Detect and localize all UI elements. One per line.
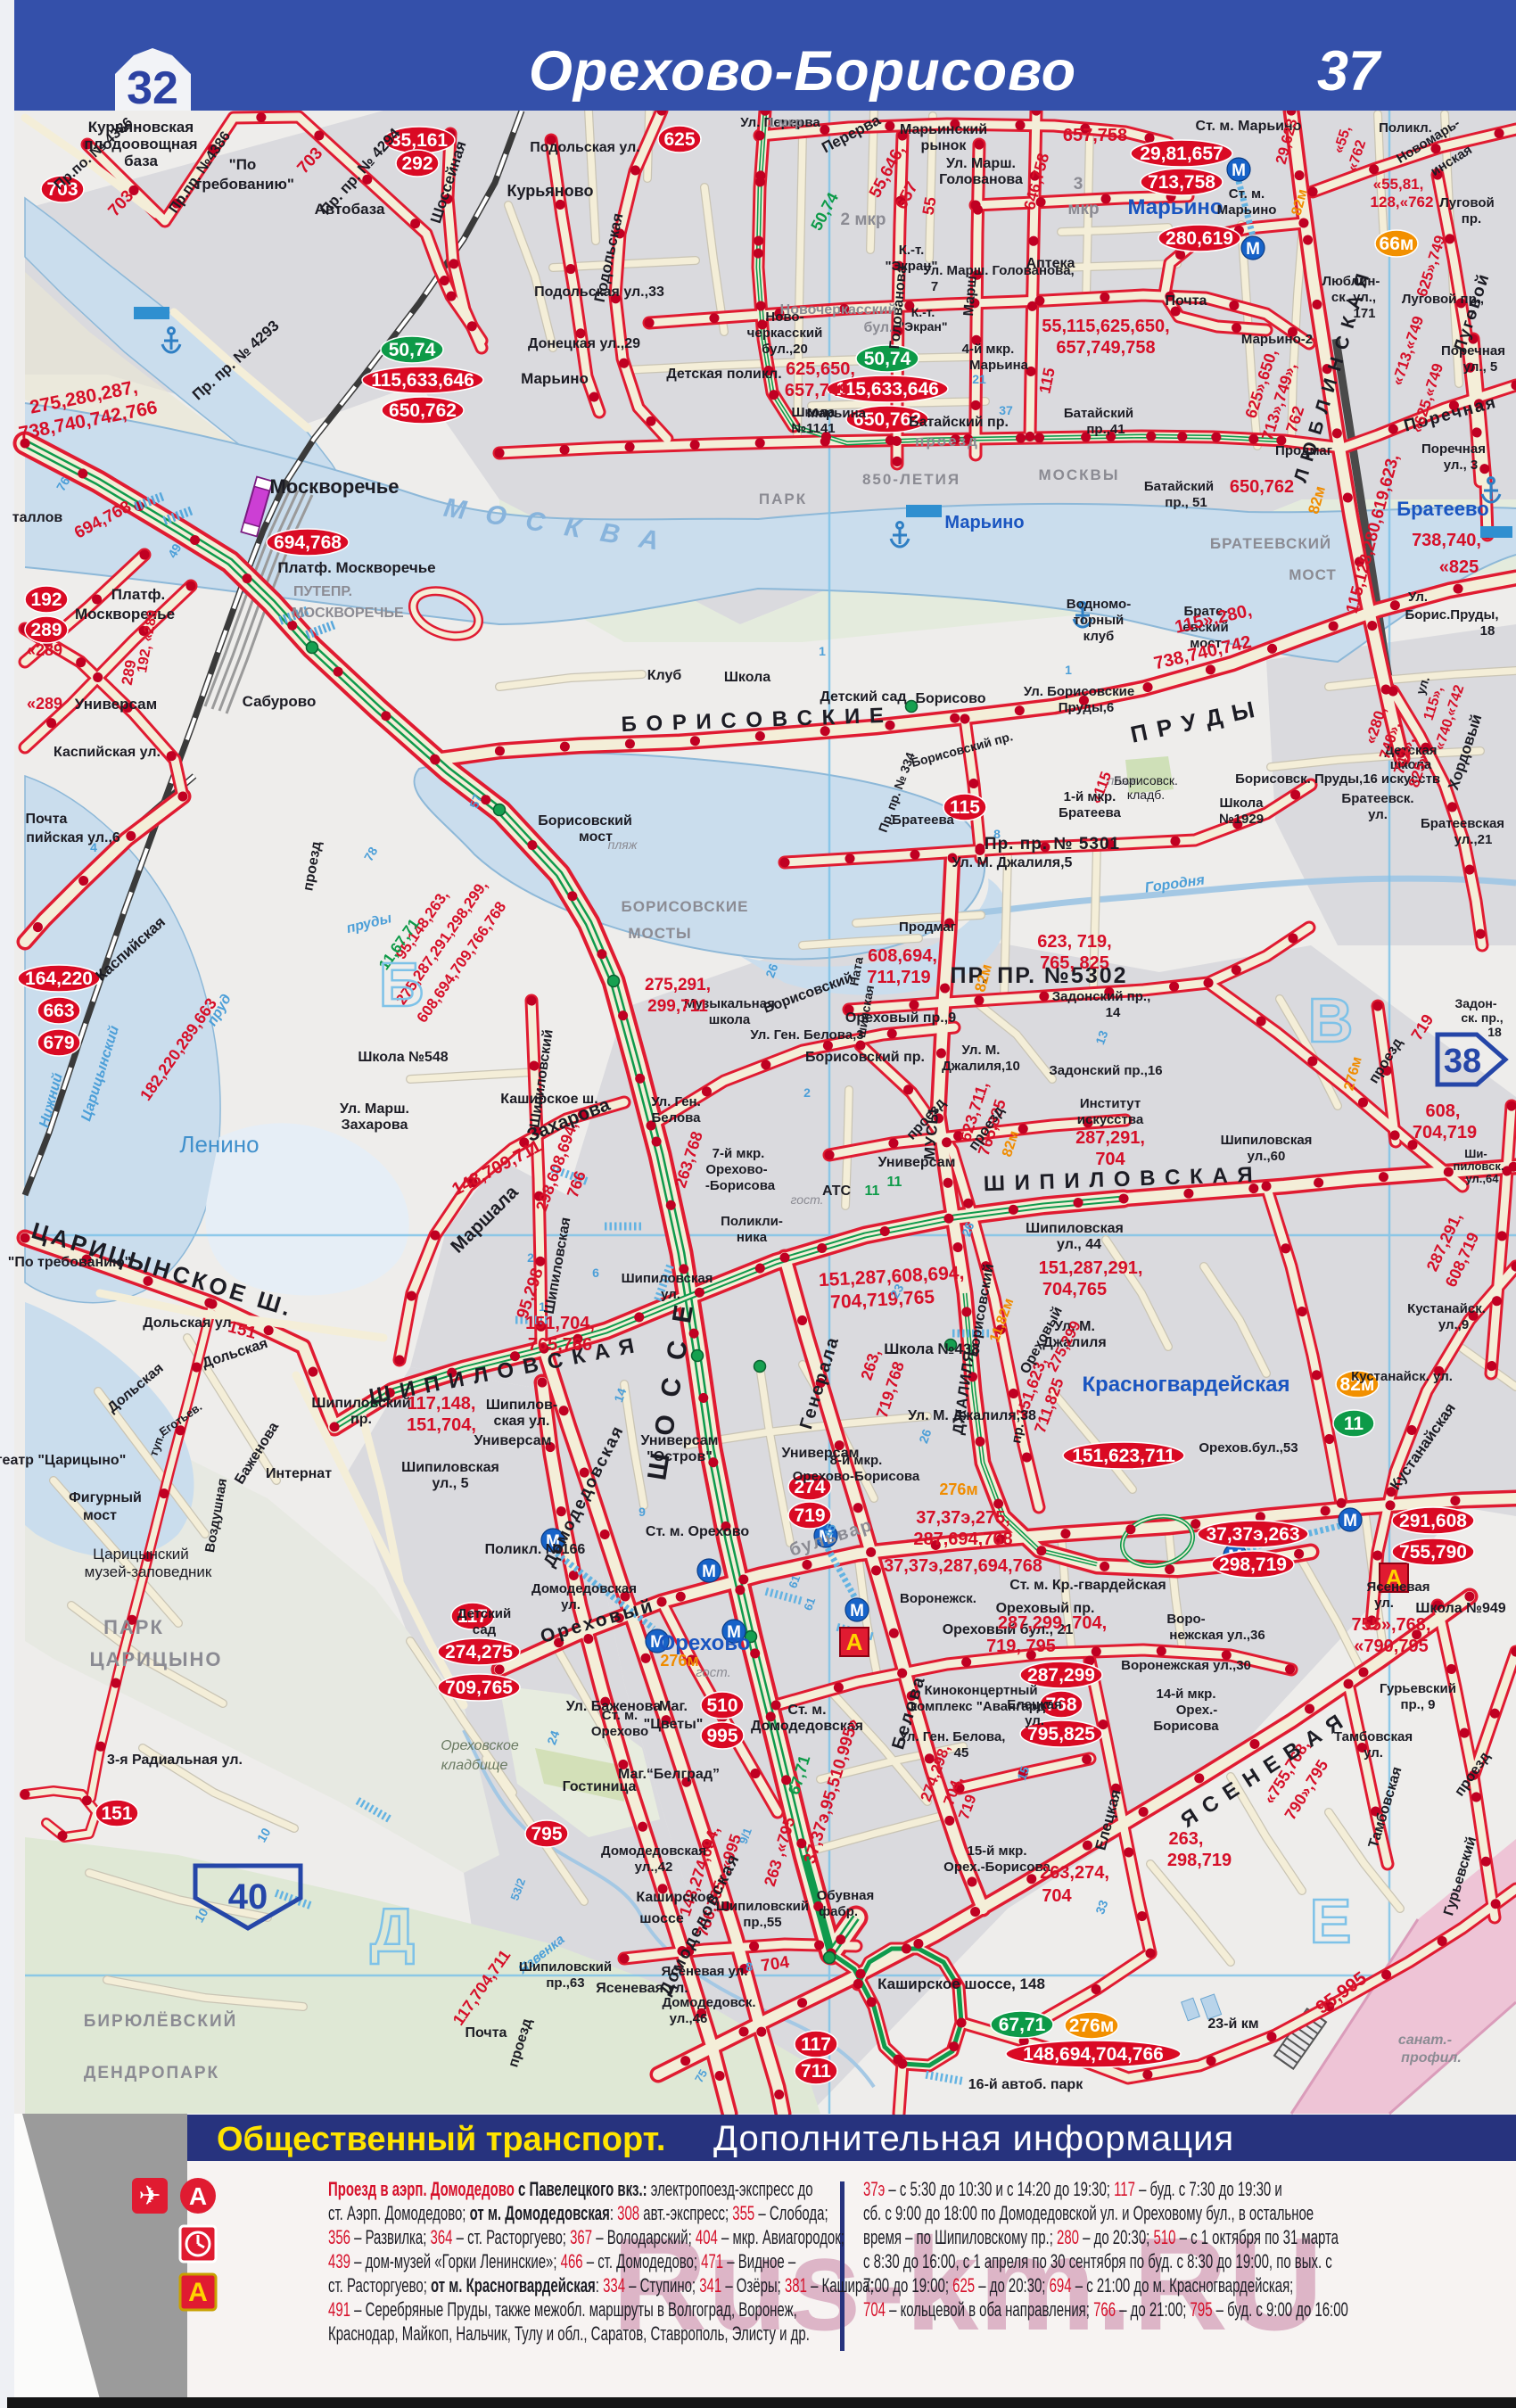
svg-text:Орехово-: Орехово- (705, 1162, 767, 1177)
svg-text:МОСКВОРЕЧЬЕ: МОСКВОРЕЧЬЕ (292, 606, 404, 621)
svg-text:704,765: 704,765 (1042, 1280, 1107, 1299)
svg-text:37,37э,275,: 37,37э,275, (916, 1508, 1010, 1528)
svg-text:М: М (1246, 240, 1260, 259)
svg-text:8: 8 (993, 827, 1001, 841)
svg-text:Марьино: Марьино (1128, 195, 1224, 219)
svg-text:шоссе: шоссе (639, 1911, 684, 1926)
svg-text:торный: торный (1074, 613, 1125, 628)
svg-text:32: 32 (127, 62, 178, 114)
svg-text:37,37э,287,694,768: 37,37э,287,694,768 (884, 1556, 1042, 1576)
svg-text:55: 55 (919, 195, 940, 216)
svg-text:55,115,625,650,: 55,115,625,650, (1042, 317, 1169, 336)
svg-text:Шипиловский: Шипиловский (519, 1959, 612, 1975)
svg-text:"Цветы": "Цветы" (644, 1717, 704, 1732)
svg-text:738,740,: 738,740, (1412, 531, 1481, 550)
svg-text:«289: «289 (27, 641, 62, 659)
svg-text:ника: ника (737, 1230, 768, 1245)
svg-text:база: база (124, 153, 158, 169)
svg-text:Платф.: Платф. (111, 586, 165, 603)
svg-text:ская ул.: ская ул. (494, 1414, 550, 1429)
svg-text:ЦАРИЦЫНО: ЦАРИЦЫНО (89, 1648, 222, 1670)
svg-text:151,704,: 151,704, (525, 1314, 595, 1333)
svg-text:Ст. м.: Ст. м. (1229, 186, 1265, 202)
svg-text:Почта: Почта (26, 812, 68, 827)
svg-text:Почта: Почта (1166, 293, 1207, 309)
svg-text:«289: «289 (27, 695, 62, 713)
svg-text:Обувная: Обувная (817, 1888, 874, 1903)
svg-text:Ленино: Ленино (179, 1131, 259, 1158)
svg-text:755,790: 755,790 (1399, 1542, 1467, 1563)
svg-text:Братеева: Братеева (1059, 805, 1121, 821)
svg-text:"По: "По (229, 156, 257, 173)
svg-text:Орех.-Борисова: Орех.-Борисова (943, 1860, 1050, 1875)
svg-text:ПАРК: ПАРК (759, 491, 807, 507)
svg-text:Каспийская ул.: Каспийская ул. (54, 745, 161, 760)
svg-text:694,768: 694,768 (274, 532, 342, 553)
svg-text:37: 37 (999, 403, 1013, 417)
svg-text:795: 795 (531, 1824, 562, 1844)
svg-text:6: 6 (592, 1266, 599, 1280)
svg-text:Батайский: Батайский (1144, 479, 1214, 494)
svg-text:Ново-: Ново- (765, 309, 803, 325)
svg-text:Орехово: Орехово (659, 1631, 751, 1655)
svg-text:-Борисова: -Борисова (705, 1178, 776, 1193)
svg-text:713,758: 713,758 (1148, 172, 1215, 193)
svg-text:К.-т.: К.-т. (911, 305, 935, 319)
svg-text:нежская ул.,36: нежская ул.,36 (1169, 1628, 1265, 1643)
svg-text:625: 625 (663, 129, 695, 150)
svg-text:Универсам: Универсам (782, 1446, 860, 1461)
svg-text:37: 37 (1317, 40, 1382, 103)
svg-text:275,291,: 275,291, (645, 976, 711, 994)
svg-text:Школа: Школа (1219, 796, 1264, 811)
svg-text:287,299, 704,: 287,299, 704, (998, 1613, 1107, 1633)
svg-text:711: 711 (801, 2061, 831, 2082)
svg-text:Институт: Институт (1080, 1096, 1141, 1111)
svg-text:проезд: проезд (915, 433, 979, 449)
svg-text:М: М (702, 1563, 716, 1581)
svg-text:Батайский: Батайский (1064, 406, 1133, 421)
svg-text:Борисовский: Борисовский (538, 813, 632, 829)
svg-text:Борисово: Борисово (916, 691, 986, 706)
svg-text:Универсам: Универсам (75, 696, 157, 713)
svg-text:Платф. Москворечье: Платф. Москворечье (277, 559, 435, 576)
svg-text:7: 7 (931, 279, 938, 294)
svg-text:М: М (1343, 1512, 1357, 1530)
svg-text:Задонский пр.,: Задонский пр., (1052, 989, 1151, 1004)
svg-text:БРАТЕЕВСКИЙ: БРАТЕЕВСКИЙ (1210, 535, 1331, 552)
svg-text:ул.,42: ул.,42 (635, 1860, 673, 1875)
svg-text:Задон-: Задон- (1454, 996, 1496, 1010)
svg-text:151,704,: 151,704, (407, 1415, 476, 1435)
svg-text:Братеевск.: Братеевск. (1341, 791, 1413, 806)
svg-text:пляж: пляж (608, 837, 639, 852)
svg-text:Интернат: Интернат (266, 1466, 332, 1481)
svg-text:608,694,: 608,694, (868, 946, 937, 966)
svg-text:276м: 276м (1069, 2016, 1115, 2036)
svg-text:Ст. м. Кр.-гвардейская: Ст. м. Кр.-гвардейская (1009, 1578, 1166, 1593)
svg-text:Белова: Белова (652, 1110, 702, 1126)
svg-text:3-я Радиальная ул.: 3-я Радиальная ул. (107, 1752, 243, 1768)
svg-text:657,749,758: 657,749,758 (1056, 338, 1155, 358)
svg-text:Ясеневая: Ясеневая (1367, 1579, 1430, 1595)
svg-text:с 8:30 до 16:00, с 1 апреля по: с 8:30 до 16:00, с 1 апреля по 30 сентяб… (863, 2250, 1332, 2272)
svg-text:гост.: гост. (696, 1665, 731, 1680)
svg-text:пр.: пр. (350, 1412, 372, 1427)
svg-text:ул., 3: ул., 3 (1444, 458, 1479, 473)
svg-text:Борисовский пр.: Борисовский пр. (805, 1050, 925, 1065)
svg-text:Подольская ул.: Подольская ул. (530, 140, 639, 155)
svg-text:7-й мкр.: 7-й мкр. (713, 1146, 765, 1161)
svg-text:Клуб: Клуб (647, 668, 682, 683)
svg-text:Продмаг: Продмаг (899, 919, 956, 935)
svg-text:Общественный транспорт.: Общественный транспорт. (217, 2121, 665, 2158)
svg-text:ул.,9: ул.,9 (1438, 1317, 1469, 1332)
svg-text:В: В (1308, 985, 1354, 1055)
svg-text:пр.,63: пр.,63 (546, 1975, 584, 1991)
svg-text:11: 11 (887, 1175, 902, 1190)
svg-text:1: 1 (1065, 663, 1072, 677)
svg-text:Каширское: Каширское (636, 1890, 713, 1905)
svg-text:Орехово: Орехово (591, 1724, 648, 1739)
svg-text:663: 663 (43, 1001, 74, 1021)
svg-text:Ул. Борисовские: Ул. Борисовские (1024, 684, 1134, 699)
svg-text:Курьяновская: Курьяновская (88, 119, 194, 136)
svg-text:Елецкая: Елецкая (1007, 1697, 1062, 1712)
svg-text:ПУТЕПР.: ПУТЕПР. (293, 584, 352, 599)
svg-text:Шипиловская: Шипиловская (401, 1460, 499, 1475)
svg-text:Продмаг: Продмаг (1275, 443, 1332, 458)
svg-text:«55,81,: «55,81, (1373, 176, 1424, 193)
svg-text:театр "Царицыно": театр "Царицыно" (0, 1453, 126, 1468)
svg-text:Почта: Почта (466, 2025, 507, 2041)
svg-text:Марьино-2: Марьино-2 (1241, 332, 1313, 347)
svg-text:Марьина: Марьина (969, 358, 1029, 373)
svg-text:Ул. Марш. Голованова,: Ул. Марш. Голованова, (923, 263, 1074, 278)
svg-text:40: 40 (228, 1877, 268, 1917)
svg-text:"По требованию": "По требованию" (8, 1255, 132, 1270)
svg-text:287,291,: 287,291, (1075, 1128, 1145, 1148)
svg-text:Краснодар, Майкоп, Нальчик, Ту: Краснодар, Майкоп, Нальчик, Тулу и обл.,… (328, 2322, 810, 2345)
svg-text:ДЕНДРОПАРК: ДЕНДРОПАРК (84, 2064, 219, 2082)
svg-text:А: А (846, 1629, 863, 1655)
svg-text:пр.,55: пр.,55 (743, 1915, 781, 1930)
svg-text:время – по Шипиловскому пр.; 2: время – по Шипиловскому пр.; 280 – до 20… (863, 2226, 1339, 2248)
svg-text:пийская ул.,6: пийская ул.,6 (26, 830, 120, 845)
svg-text:Голованова: Голованова (939, 172, 1023, 187)
svg-text:Марьино: Марьино (944, 513, 1024, 532)
svg-text:Шипиловская: Шипиловская (622, 1271, 713, 1286)
svg-text:491 – Серебряные Пруды, также: 491 – Серебряные Пруды, также межобл. ма… (328, 2298, 797, 2321)
svg-text:Дополнительная информация: Дополнительная информация (713, 2119, 1234, 2158)
svg-text:995: 995 (706, 1726, 737, 1746)
svg-text:бул.,20: бул.,20 (762, 342, 808, 357)
svg-text:клуб: клуб (1083, 629, 1115, 644)
svg-text:151: 151 (101, 1803, 132, 1824)
svg-text:Борисовск.: Борисовск. (1114, 773, 1178, 788)
svg-text:Ст. м.: Ст. м. (602, 1708, 638, 1723)
svg-text:мкр: мкр (1067, 200, 1099, 219)
svg-text:ст. Аэрп. Домодедово; от м. До: ст. Аэрп. Домодедово; от м. Домодедовска… (328, 2202, 828, 2224)
svg-text:№1141: №1141 (791, 421, 835, 436)
svg-text:музей-заповедник: музей-заповедник (85, 1563, 212, 1580)
svg-text:"Экран": "Экран" (898, 319, 947, 334)
svg-text:Пруды,6: Пруды,6 (1059, 700, 1115, 715)
svg-text:14: 14 (1106, 1005, 1121, 1020)
svg-text:Б: Б (379, 950, 424, 1019)
svg-text:ул.: ул. (1364, 1745, 1383, 1761)
svg-text:школа: школа (709, 1012, 751, 1027)
svg-text:Каширское ш.: Каширское ш. (500, 1092, 597, 1107)
svg-text:ск. пр.,: ск. пр., (1461, 1010, 1503, 1025)
svg-text:765,766: 765,766 (528, 1335, 592, 1355)
svg-text:Орехово-Борисово: Орехово-Борисово (529, 40, 1076, 103)
svg-text:Братеевская: Братеевская (1421, 816, 1504, 831)
svg-text:таллов: таллов (12, 510, 63, 525)
svg-text:МОСКВЫ: МОСКВЫ (1039, 466, 1120, 483)
svg-text:Поликл. №166: Поликл. №166 (485, 1542, 586, 1557)
svg-text:298,719: 298,719 (1219, 1554, 1287, 1575)
svg-text:Ул. Ген. Белова,3: Ул. Ген. Белова,3 (750, 1027, 863, 1043)
svg-text:ул.: ул. (1374, 1596, 1394, 1611)
svg-text:✈: ✈ (138, 2181, 161, 2211)
svg-text:Ул. М.: Ул. М. (962, 1043, 1001, 1058)
svg-text:50,74: 50,74 (389, 340, 436, 360)
svg-text:бул.: бул. (864, 320, 894, 335)
svg-text:128,«762: 128,«762 (1371, 194, 1434, 210)
svg-text:Д: Д (370, 1895, 415, 1965)
svg-text:2 мкр: 2 мкр (840, 210, 886, 229)
svg-text:280,619: 280,619 (1166, 228, 1233, 249)
svg-text:37,37э,263: 37,37э,263 (1206, 1524, 1299, 1545)
svg-text:Воронежск.: Воронежск. (900, 1591, 976, 1606)
svg-text:115: 115 (950, 797, 980, 818)
svg-text:пр., 51: пр., 51 (1165, 495, 1207, 510)
svg-text:ул.,60: ул.,60 (1248, 1149, 1286, 1164)
svg-text:625,650,: 625,650, (786, 359, 855, 379)
svg-text:М: М (850, 1602, 864, 1620)
svg-text:Гурьевский: Гурьевский (1380, 1681, 1456, 1696)
svg-text:рынок: рынок (921, 138, 968, 153)
svg-text:черкасский: черкасский (747, 326, 823, 341)
svg-text:Проезд в аэрп. Домодедово с Па: Проезд в аэрп. Домодедово с Павелецкого … (328, 2178, 813, 2200)
svg-text:Донецкая ул.,29: Донецкая ул.,29 (528, 336, 640, 351)
svg-text:Домодедовская: Домодедовская (601, 1843, 706, 1859)
svg-text:Ул.: Ул. (1408, 590, 1428, 605)
svg-text:Ореховское: Ореховское (441, 1738, 519, 1753)
svg-text:ул.,46: ул.,46 (670, 2011, 708, 2026)
svg-text:4: 4 (90, 840, 97, 854)
svg-text:1 мкр: 1 мкр (767, 115, 803, 130)
svg-text:Подольская ул.,33: Подольская ул.,33 (534, 285, 664, 300)
svg-text:Ул. М. Джалиля,5: Ул. М. Джалиля,5 (952, 855, 1073, 870)
svg-text:ул.,21: ул.,21 (1454, 832, 1493, 847)
svg-text:Школа: Школа (791, 405, 836, 420)
svg-text:164,220: 164,220 (25, 969, 93, 989)
svg-text:171: 171 (1353, 306, 1375, 321)
svg-text:Кустанайск. ул.: Кустанайск. ул. (1351, 1369, 1453, 1384)
svg-text:704,719: 704,719 (1413, 1123, 1477, 1142)
svg-text:263,: 263, (1169, 1829, 1204, 1849)
svg-text:Джалиля,10: Джалиля,10 (942, 1059, 1020, 1074)
svg-text:Кустанайск.: Кустанайск. (1407, 1301, 1486, 1316)
svg-text:№1929: №1929 (1219, 812, 1264, 827)
svg-text:мост: мост (83, 1508, 117, 1523)
svg-text:151,287,291,: 151,287,291, (1039, 1258, 1143, 1278)
svg-text:Сабурово: Сабурово (243, 693, 317, 710)
svg-text:18: 18 (1480, 623, 1495, 639)
svg-text:Воро-: Воро- (1166, 1612, 1205, 1627)
svg-text:Борисова: Борисова (1153, 1719, 1219, 1734)
svg-text:Братеево: Братеево (1397, 498, 1488, 520)
svg-text:Тамбовская: Тамбовская (1334, 1729, 1413, 1744)
svg-text:Школа №548: Школа №548 (358, 1050, 448, 1065)
svg-text:Орехово-Борисова: Орехово-Борисова (793, 1469, 920, 1484)
svg-text:Москворечье: Москворечье (269, 475, 399, 498)
svg-text:679: 679 (43, 1033, 74, 1053)
svg-text:274,275: 274,275 (445, 1642, 513, 1662)
svg-text:11: 11 (865, 1183, 880, 1199)
svg-text:650,762: 650,762 (1230, 477, 1294, 497)
svg-text:711,719: 711,719 (867, 968, 930, 987)
svg-text:Шипиловская: Шипиловская (1026, 1221, 1124, 1236)
svg-text:Красногвардейская: Красногвардейская (1082, 1373, 1289, 1397)
svg-text:356 – Развилка; 364 – ст. Раст: 356 – Развилка; 364 – ст. Расторгуево; 3… (328, 2226, 845, 2248)
svg-text:пр.,41: пр.,41 (1086, 422, 1125, 437)
svg-text:Захарова: Захарова (342, 1117, 408, 1133)
svg-text:657,758: 657,758 (1063, 126, 1127, 145)
svg-text:кладбище: кладбище (441, 1758, 508, 1773)
svg-text:4-й мкр.: 4-й мкр. (962, 342, 1015, 357)
svg-text:2: 2 (527, 1250, 534, 1265)
svg-text:11: 11 (1344, 1414, 1364, 1434)
svg-text:Шипилов-: Шипилов- (486, 1398, 557, 1413)
svg-text:ул., 44: ул., 44 (1057, 1237, 1101, 1252)
svg-text:М: М (1232, 161, 1246, 180)
svg-text:14-й мкр.: 14-й мкр. (1156, 1686, 1215, 1702)
svg-text:67,71: 67,71 (999, 2015, 1046, 2035)
svg-text:623, 719,: 623, 719, (1037, 932, 1111, 952)
svg-text:ул.: ул. (1025, 1713, 1044, 1728)
svg-text:510: 510 (706, 1695, 737, 1716)
svg-text:Киноконцертный: Киноконцертный (924, 1683, 1037, 1698)
svg-text:1-й мкр.: 1-й мкр. (1064, 789, 1116, 804)
svg-text:Ши-: Ши- (1464, 1147, 1487, 1160)
svg-text:ул., 5: ул., 5 (1463, 359, 1498, 375)
svg-text:сад: сад (473, 1622, 497, 1637)
svg-text:650,762: 650,762 (389, 400, 457, 421)
svg-text:15-й мкр.: 15-й мкр. (967, 1843, 1026, 1859)
svg-text:профил.: профил. (1401, 2050, 1462, 2066)
svg-text:фабр.: фабр. (819, 1904, 858, 1919)
svg-text:Ст. м. Орехово: Ст. м. Орехово (646, 1524, 749, 1539)
svg-text:719: 719 (794, 1505, 825, 1526)
svg-text:Марьино: Марьино (1217, 202, 1277, 218)
svg-text:Маг.: Маг. (659, 1699, 688, 1714)
svg-text:ул., 5: ул., 5 (432, 1476, 468, 1491)
svg-text:Универсам: Универсам (474, 1433, 552, 1448)
svg-text:291,608: 291,608 (1399, 1511, 1467, 1531)
svg-text:115,633,646: 115,633,646 (371, 370, 474, 391)
svg-text:кладб.: кладб. (1127, 788, 1165, 802)
svg-text:Универсам: Универсам (878, 1155, 956, 1170)
svg-text:276м: 276м (939, 1480, 977, 1498)
svg-text:Детский: Детский (457, 1606, 511, 1621)
svg-text:Водномо-: Водномо- (1067, 597, 1131, 612)
svg-text:1: 1 (819, 644, 826, 658)
svg-text:850-ЛЕТИЯ: 850-ЛЕТИЯ (862, 471, 960, 488)
svg-text:Поречная: Поречная (1421, 441, 1486, 457)
svg-text:37э – с 5:30 до 10:30 и с 14:2: 37э – с 5:30 до 10:30 и с 14:20 до 19:30… (863, 2178, 1282, 2200)
svg-text:Ул. М. Джалиля,38: Ул. М. Джалиля,38 (908, 1408, 1036, 1423)
svg-text:Марьинский: Марьинский (900, 122, 987, 137)
svg-text:пр.: пр. (1462, 211, 1481, 227)
svg-text:50,74: 50,74 (864, 349, 911, 369)
svg-text:Ст. м.: Ст. м. (787, 1703, 826, 1718)
svg-text:БОРИСОВСКИЕ: БОРИСОВСКИЕ (622, 898, 749, 915)
svg-text:29,81,657: 29,81,657 (1140, 144, 1223, 164)
svg-text:704: 704 (760, 1953, 791, 1975)
svg-text:Марьино: Марьино (521, 370, 589, 387)
svg-text:18: 18 (1487, 1025, 1502, 1039)
svg-text:А: А (189, 2182, 207, 2210)
svg-text:Поликли-: Поликли- (721, 1214, 783, 1229)
svg-text:608,: 608, (1426, 1101, 1461, 1121)
svg-text:7:00 до 19:00; 625 – до 20:30;: 7:00 до 19:00; 625 – до 20:30; 694 – с 2… (863, 2274, 1293, 2297)
svg-text:298,719: 298,719 (1167, 1851, 1232, 1870)
svg-text:192: 192 (30, 590, 62, 610)
svg-text:Фигурный: Фигурный (69, 1490, 142, 1505)
svg-text:«825: «825 (1439, 557, 1479, 577)
svg-text:Школа: Школа (724, 670, 770, 685)
svg-text:А: А (188, 2278, 208, 2307)
svg-text:ст. Расторгуево; от м. Красно: ст. Расторгуево; от м. Красногвардейская… (328, 2274, 874, 2297)
svg-text:439 – дом-музей «Горки Ленинск: 439 – дом-музей «Горки Ленинские»; 466 –… (328, 2250, 796, 2272)
svg-text:Домодедовск.: Домодедовск. (662, 1995, 755, 2010)
svg-text:Шипиловский: Шипиловский (716, 1899, 809, 1914)
svg-text:требованию": требованию" (194, 176, 294, 193)
svg-text:21: 21 (972, 372, 986, 386)
svg-text:8: 8 (746, 1959, 753, 1974)
svg-text:Царицынский: Царицынский (93, 1546, 189, 1563)
svg-text:755»,768,: 755»,768, (1352, 1615, 1431, 1635)
svg-text:Воронежская ул.,30: Воронежская ул.,30 (1121, 1658, 1251, 1673)
svg-text:ск. ул.,: ск. ул., (1331, 290, 1376, 305)
svg-text:148,694,704,766: 148,694,704,766 (1023, 2044, 1164, 2065)
svg-text:Ул. Ген.: Ул. Ген. (651, 1094, 701, 1109)
svg-text:сб. с 9:00 до 18:00 по Домодед: сб. с 9:00 до 18:00 по Домодедовской ул.… (863, 2202, 1314, 2224)
svg-text:Орехов.бул.,53: Орехов.бул.,53 (1199, 1440, 1298, 1456)
svg-text:115,633,646: 115,633,646 (836, 379, 939, 400)
svg-text:709,765: 709,765 (445, 1678, 513, 1698)
svg-text:Ясеневая ул.: Ясеневая ул. (596, 1981, 688, 1996)
svg-text:ул.: ул. (1368, 807, 1388, 822)
svg-text:Каширское шоссе, 148: Каширское шоссе, 148 (877, 1975, 1045, 1992)
svg-text:Гостиница: Гостиница (563, 1779, 637, 1794)
svg-text:117: 117 (801, 2034, 831, 2055)
svg-text:3: 3 (1074, 175, 1083, 194)
svg-text:289: 289 (30, 620, 62, 640)
svg-text:Поликл.: Поликл. (1379, 120, 1432, 136)
svg-text:Батайский пр.: Батайский пр. (909, 415, 1009, 430)
svg-text:2: 2 (803, 1085, 811, 1100)
svg-text:704: 704 (1095, 1150, 1125, 1169)
svg-text:23-й км: 23-й км (1207, 2016, 1258, 2032)
svg-text:9: 9 (639, 1505, 646, 1519)
svg-text:Ясеневая ул.: Ясеневая ул. (662, 1964, 748, 1979)
svg-text:Задонский пр.,16: Задонский пр.,16 (1049, 1063, 1162, 1078)
svg-text:292: 292 (401, 153, 433, 174)
